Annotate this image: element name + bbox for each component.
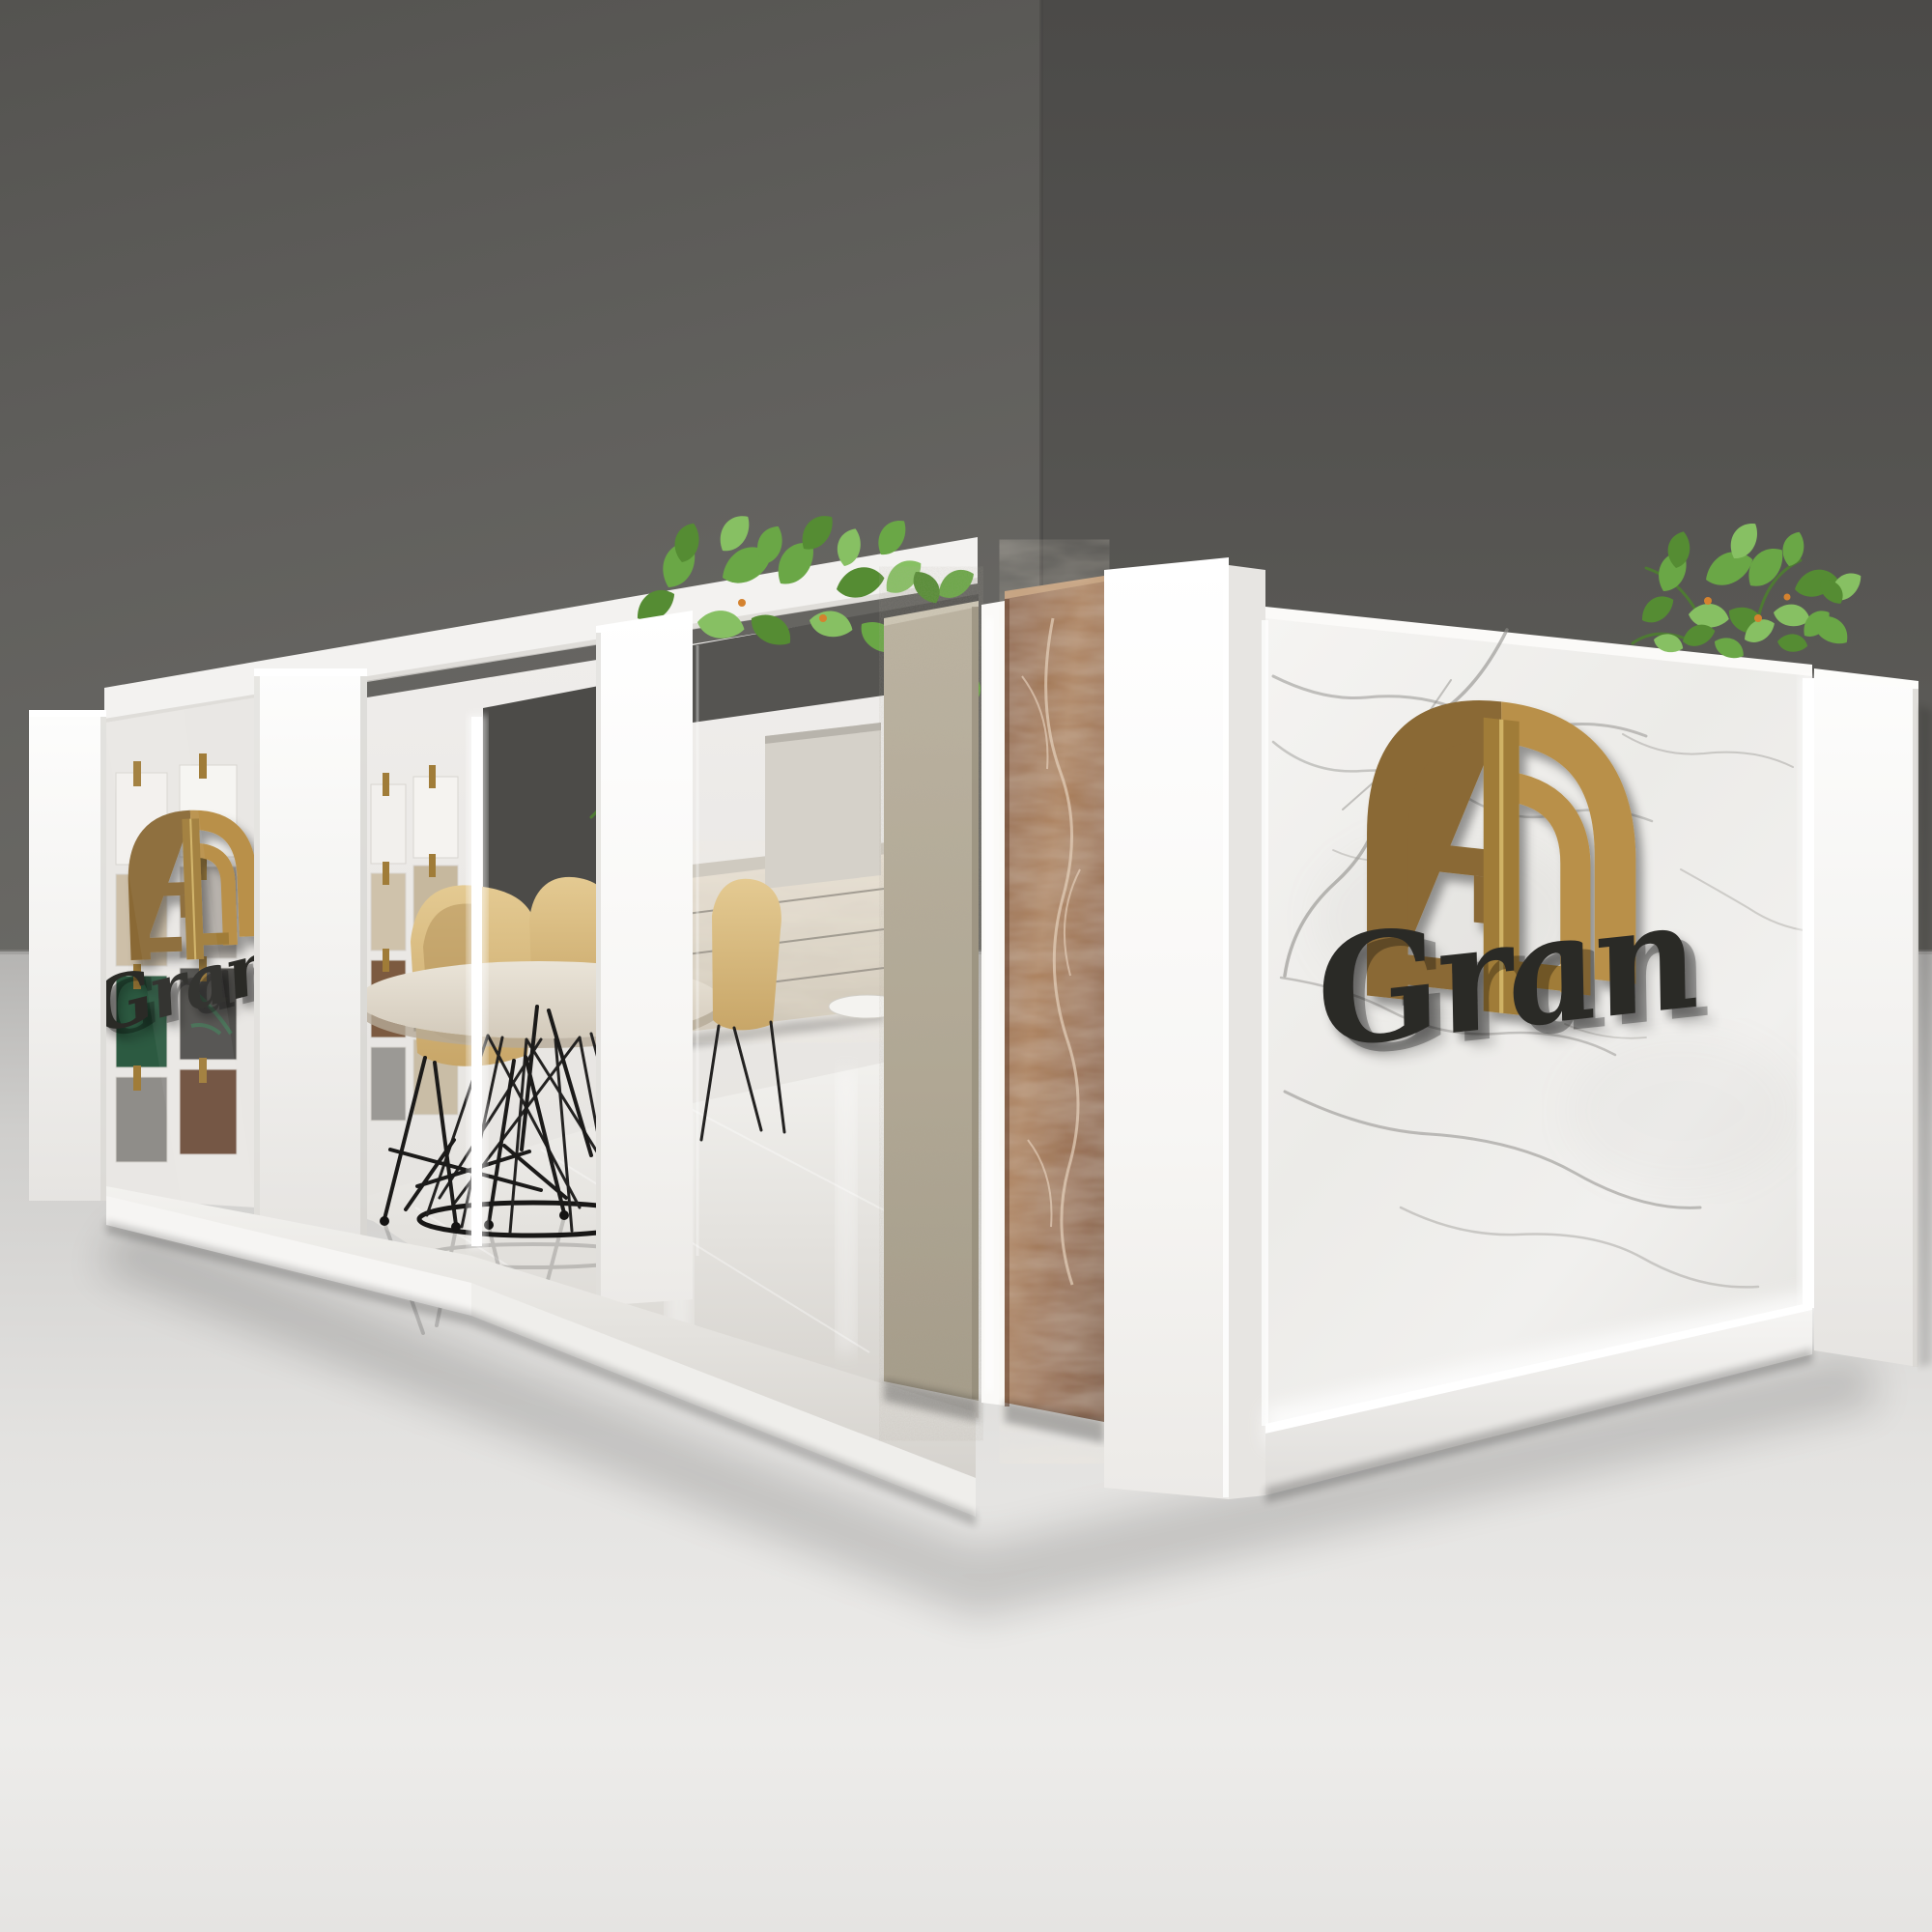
granite-slab — [884, 601, 979, 1422]
render-stage: Gran Gran — [0, 0, 1932, 1932]
led-strip-doorway — [468, 715, 487, 1248]
floor-reflection-streak — [837, 1072, 856, 1352]
booth-render-scene: Gran Gran — [0, 0, 1932, 1932]
white-marble-logo-wall: Gran Gran — [1262, 607, 1820, 1503]
pillar-cast-shadow — [1918, 705, 1932, 1367]
right-end-pillar — [1814, 668, 1932, 1367]
pillar-a — [29, 710, 106, 1201]
brown-marble-slab — [1005, 576, 1104, 1443]
led-wall-sliver — [981, 601, 1005, 1406]
white-corner-pillar — [1104, 557, 1265, 1499]
marble-planter — [765, 723, 881, 889]
led-strip-left-edge — [1262, 620, 1268, 1426]
pillar-b — [254, 668, 367, 1238]
pillar-c — [596, 611, 693, 1307]
